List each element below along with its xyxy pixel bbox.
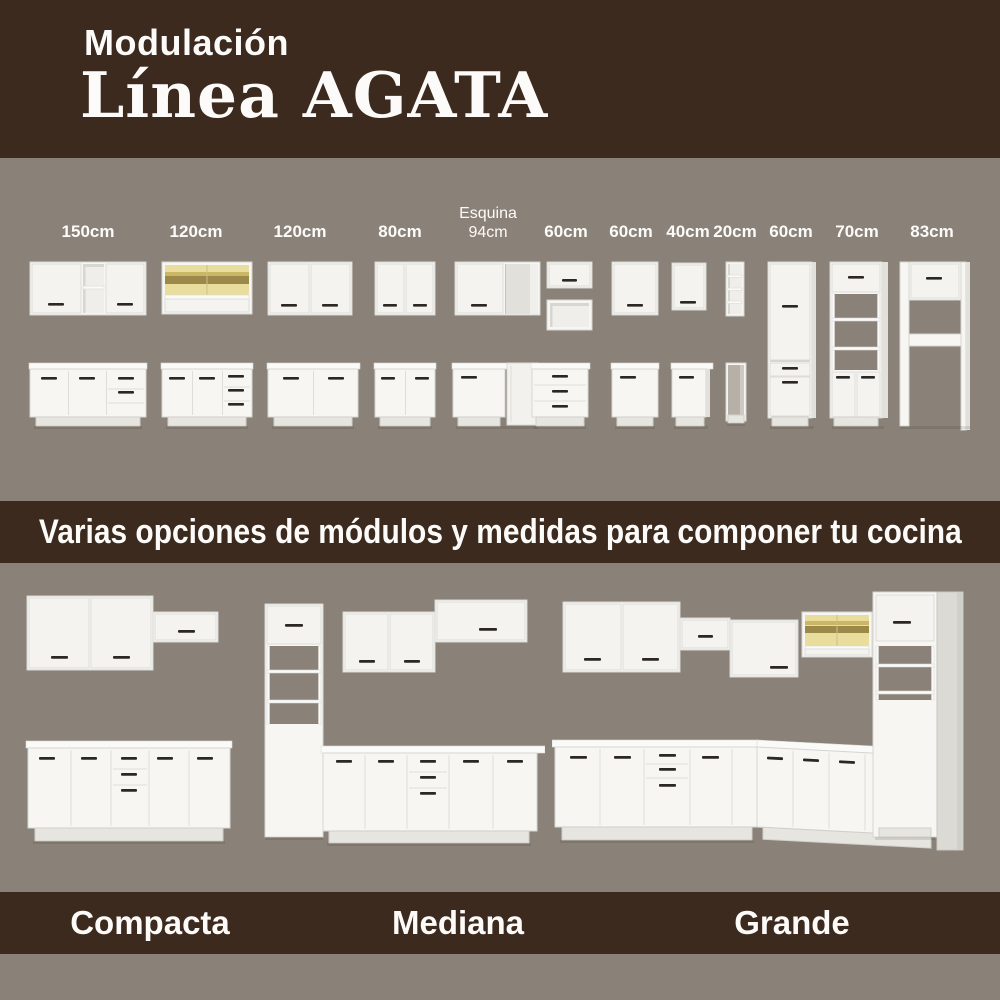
module-60cm-flap-wall [547, 262, 592, 330]
page-title: Línea AGATA [80, 58, 548, 132]
module-120cm-base-drawers [161, 363, 253, 429]
kitchens-section [0, 563, 1000, 892]
modules-illustration [0, 158, 1000, 501]
module-60cm-base-door [611, 363, 659, 429]
module-60cm-tall-pantry [768, 262, 816, 429]
module-120cm-wall-glass [162, 262, 252, 314]
grande-tall-tower [873, 592, 937, 840]
kitchen-compacta [25, 592, 235, 844]
module-150cm-wall [30, 262, 146, 315]
modules-section: 150cm 120cm 120cm 80cm Esquina 94cm 60cm… [0, 158, 1000, 501]
compacta-base-run [26, 741, 232, 844]
compacta-wall-cabinets [27, 596, 218, 670]
mediana-tall-tower [265, 604, 323, 840]
module-40cm-base [671, 363, 713, 429]
kitchen-label-compacta: Compacta [70, 904, 230, 942]
module-40cm-wall [672, 263, 706, 310]
module-20cm-base-niche [726, 363, 746, 426]
header: Modulación Línea AGATA [0, 0, 1000, 158]
module-esquina-wall [455, 262, 540, 315]
kitchen-grande [552, 588, 968, 880]
module-83cm-tall-surround [900, 262, 970, 430]
module-60cm-base-drawers [531, 363, 590, 429]
grande-base-left-run [552, 740, 758, 843]
kitchen-mediana [255, 596, 545, 846]
module-120cm-base [267, 363, 360, 429]
kitchen-label-grande: Grande [734, 904, 850, 942]
module-150cm-base [29, 363, 147, 429]
banner-text: Varias opciones de módulos y medidas par… [39, 513, 962, 552]
kitchen-labels-band: Compacta Mediana Grande [0, 892, 1000, 954]
module-80cm-wall [375, 262, 435, 315]
module-esquina-base [452, 363, 538, 429]
module-80cm-base [374, 363, 436, 429]
kitchen-label-mediana: Mediana [392, 904, 524, 942]
banner: Varias opciones de módulos y medidas par… [0, 501, 1000, 563]
module-120cm-wall [268, 262, 352, 315]
grande-right-side-panel [937, 592, 963, 850]
module-70cm-tall-oven [830, 262, 888, 429]
mediana-base-run [321, 746, 545, 846]
mediana-wall-cabinets [343, 600, 527, 672]
grande-glass-wood-cabinet [802, 612, 872, 657]
grande-wall-cabinets [563, 602, 798, 677]
kitchen-modulation-infographic: Modulación Línea AGATA 150cm 120cm 120cm… [0, 0, 1000, 1000]
module-20cm-wall-shelves [726, 262, 744, 316]
module-60cm-wall-door [612, 262, 658, 315]
footer-strip [0, 954, 1000, 1000]
